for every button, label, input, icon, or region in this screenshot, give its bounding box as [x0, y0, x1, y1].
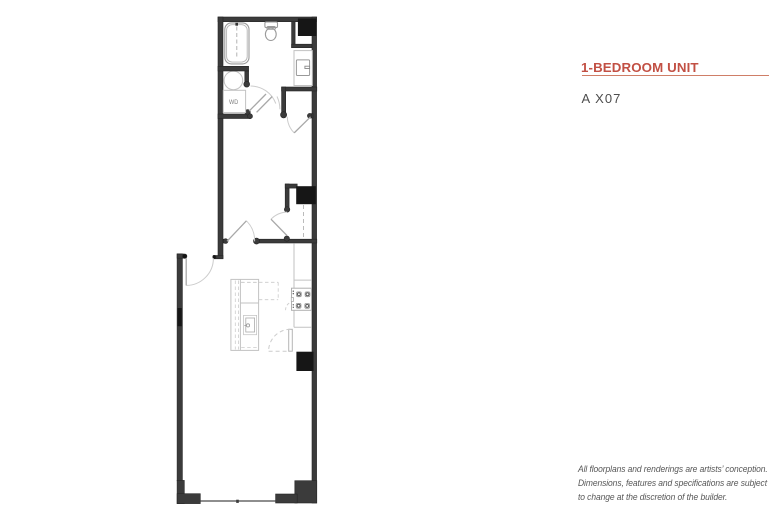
svg-text:WD: WD — [229, 99, 239, 106]
